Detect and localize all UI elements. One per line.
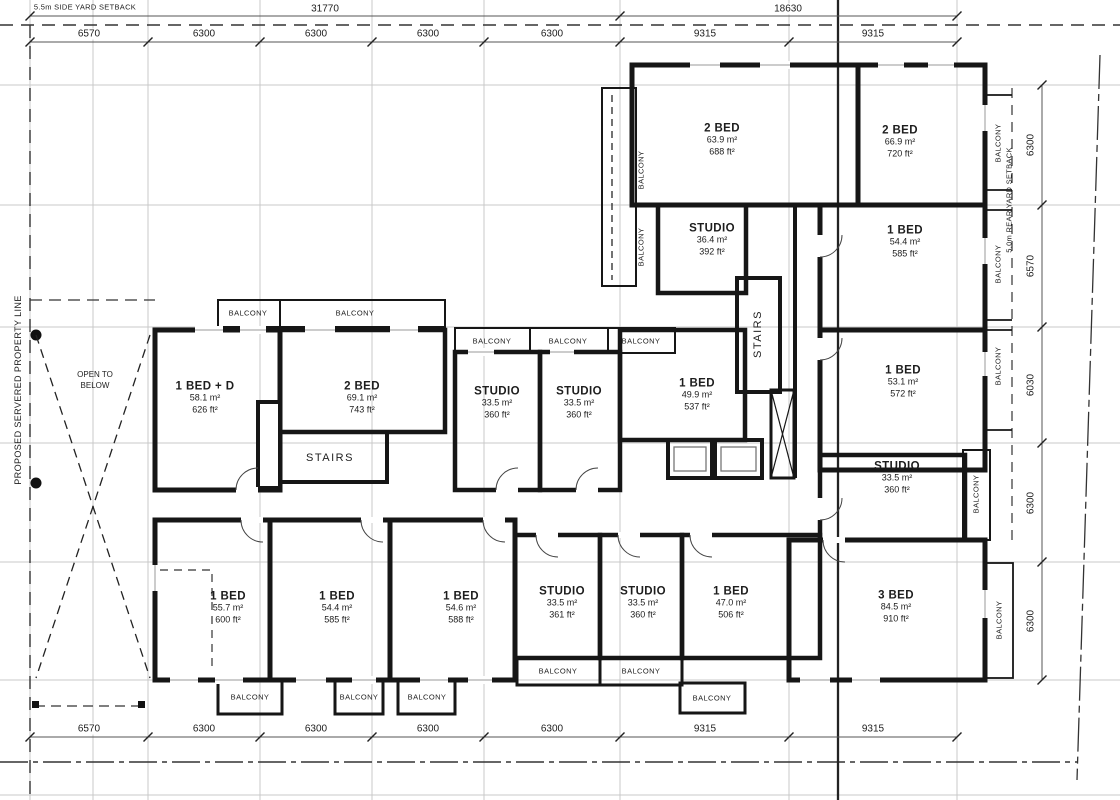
dim-label: 6300: [539, 29, 565, 40]
balcony-label: BALCONY: [994, 124, 1003, 163]
balcony-label: BALCONY: [408, 693, 447, 702]
dim-label: 6300: [539, 724, 565, 735]
balcony-label: BALCONY: [473, 337, 512, 346]
property-line-label: PROPOSED SERVERED PROPERTY LINE: [13, 295, 23, 484]
room-label: 1 BED54.4 m²585 ft²: [887, 224, 923, 259]
dim-label: 6570: [76, 724, 102, 735]
dim-label: 6300: [415, 724, 441, 735]
room-label: 1 BED55.7 m²600 ft²: [210, 590, 246, 625]
dim-label: 9315: [860, 29, 886, 40]
open-to-below-label: OPEN TO BELOW: [77, 369, 113, 391]
dim-label: 6570: [1026, 253, 1037, 279]
dim-label: 9315: [692, 724, 718, 735]
balcony-label: BALCONY: [622, 337, 661, 346]
dim-label: 6300: [1026, 490, 1037, 516]
dim-label: 18630: [772, 4, 804, 15]
stairs-label: STAIRS: [752, 310, 764, 358]
room-label: STUDIO33.5 m²361 ft²: [539, 585, 585, 620]
balcony-label: BALCONY: [539, 667, 578, 676]
dim-label: 9315: [692, 29, 718, 40]
setback-side-label: 5.5m SIDE YARD SETBACK: [34, 3, 136, 12]
balcony-label: BALCONY: [693, 694, 732, 703]
balcony-label: BALCONY: [972, 475, 981, 514]
balcony-label: BALCONY: [231, 693, 270, 702]
room-label: 1 BED + D58.1 m²626 ft²: [176, 380, 235, 415]
balcony-label: BALCONY: [229, 309, 268, 318]
room-label: 1 BED54.6 m²588 ft²: [443, 590, 479, 625]
balcony-label: BALCONY: [995, 601, 1004, 640]
room-label: 2 BED66.9 m²720 ft²: [882, 124, 918, 159]
room-label: 2 BED69.1 m²743 ft²: [344, 380, 380, 415]
dim-label: 31770: [309, 4, 341, 15]
dim-label: 9315: [860, 724, 886, 735]
setback-rear-label: 5.0m REAR YARD SETBACK: [1005, 147, 1014, 253]
balcony-label: BALCONY: [994, 347, 1003, 386]
dim-label: 6570: [76, 29, 102, 40]
balcony-label: BALCONY: [336, 309, 375, 318]
room-label: 1 BED49.9 m²537 ft²: [679, 377, 715, 412]
balcony-label: BALCONY: [994, 245, 1003, 284]
dim-label: 6300: [1026, 132, 1037, 158]
balcony-label: BALCONY: [637, 228, 646, 267]
dim-label: 6300: [1026, 608, 1037, 634]
room-label: 2 BED63.9 m²688 ft²: [704, 122, 740, 157]
interior-dashed: [160, 570, 212, 668]
balcony-label: BALCONY: [637, 151, 646, 190]
dim-label: 6300: [191, 29, 217, 40]
balcony-label: BALCONY: [549, 337, 588, 346]
stairs-label: STAIRS: [306, 452, 354, 464]
room-label: STUDIO33.5 m²360 ft²: [556, 385, 602, 420]
dim-label: 6300: [415, 29, 441, 40]
room-label: STUDIO36.4 m²392 ft²: [689, 222, 735, 257]
dim-label: 6030: [1026, 372, 1037, 398]
room-label: STUDIO33.5 m²360 ft²: [620, 585, 666, 620]
dim-label: 6300: [303, 724, 329, 735]
room-label: 3 BED84.5 m²910 ft²: [878, 589, 914, 624]
room-label: 1 BED53.1 m²572 ft²: [885, 364, 921, 399]
floor-plan: 5.5m SIDE YARD SETBACK 5.0m REAR YARD SE…: [0, 0, 1120, 800]
dim-label: 6300: [303, 29, 329, 40]
shaft: [771, 390, 794, 478]
room-label: 1 BED54.4 m²585 ft²: [319, 590, 355, 625]
balcony-label: BALCONY: [622, 667, 661, 676]
room-label: STUDIO33.5 m²360 ft²: [874, 460, 920, 495]
room-label: 1 BED47.0 m²506 ft²: [713, 585, 749, 620]
elevators: [668, 440, 762, 478]
balcony-label: BALCONY: [340, 693, 379, 702]
dim-label: 6300: [191, 724, 217, 735]
room-label: STUDIO33.5 m²360 ft²: [474, 385, 520, 420]
